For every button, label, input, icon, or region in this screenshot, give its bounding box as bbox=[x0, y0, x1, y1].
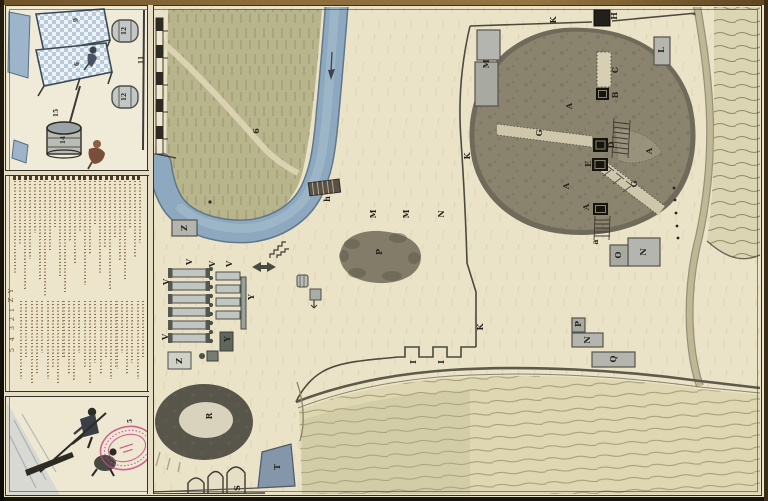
vineyard-field bbox=[707, 7, 760, 259]
legend-script-line bbox=[134, 181, 136, 257]
legend-key-mark bbox=[51, 176, 54, 180]
legend-script-line bbox=[74, 181, 76, 265]
barrel-upper bbox=[112, 20, 138, 42]
legend-script-line bbox=[64, 181, 66, 293]
legend-script-line bbox=[44, 181, 46, 296]
small-barrel bbox=[297, 275, 308, 287]
large-tub bbox=[47, 122, 81, 158]
legend-script-line bbox=[73, 301, 75, 381]
legend-script-line bbox=[109, 181, 111, 289]
lower-ladder bbox=[594, 216, 610, 240]
photo-edge-top bbox=[0, 0, 768, 5]
legend-key-mark bbox=[83, 176, 86, 180]
legend-script-line bbox=[89, 301, 91, 385]
structure-h bbox=[594, 10, 610, 26]
legend-script-line bbox=[57, 301, 59, 385]
legend-key-mark bbox=[45, 176, 48, 180]
map-panel bbox=[152, 7, 761, 494]
building-z bbox=[172, 220, 197, 236]
legend-script-line bbox=[94, 181, 96, 225]
legend-script-line bbox=[100, 301, 102, 375]
workers-inset bbox=[7, 396, 148, 495]
legend-script-line bbox=[142, 301, 144, 359]
legend-script-line bbox=[69, 181, 71, 241]
building-l bbox=[654, 37, 670, 65]
legend-script-line bbox=[19, 181, 21, 245]
legend-script-line bbox=[14, 181, 16, 273]
legend-script-line bbox=[52, 301, 54, 369]
legend-key-mark bbox=[105, 176, 108, 180]
legend-script-line bbox=[114, 181, 116, 237]
legend-script-line bbox=[115, 301, 117, 369]
manuscript-map-sheet: 6hMMNZPVVVVVYYZMKHCBAAAAGGDEaKKIILONPNQR… bbox=[0, 0, 768, 501]
map-drawing bbox=[152, 7, 761, 494]
bottom-field bbox=[299, 376, 760, 494]
bank-post bbox=[208, 200, 211, 203]
legend-script-line bbox=[110, 301, 112, 379]
legend-script-line bbox=[89, 181, 91, 255]
legend-panel bbox=[7, 175, 148, 391]
legend-key-mark bbox=[126, 176, 129, 180]
knoll-p bbox=[339, 231, 421, 283]
legend-script-line bbox=[24, 181, 26, 291]
legend-key-mark bbox=[121, 176, 124, 180]
legend-script-line bbox=[59, 181, 61, 277]
legend-script-line bbox=[39, 181, 41, 281]
legend-script-line bbox=[34, 181, 36, 233]
legend-key-mark bbox=[67, 176, 70, 180]
legend-script-line bbox=[126, 301, 128, 375]
legend-key-mark bbox=[62, 176, 65, 180]
legend-key-mark bbox=[29, 176, 32, 180]
legend-script-line bbox=[119, 181, 121, 261]
legend-script-line bbox=[139, 181, 141, 243]
buildings-m bbox=[475, 30, 500, 106]
legend-script-line bbox=[62, 301, 64, 359]
legend-script-line bbox=[20, 301, 22, 379]
legend-script-line bbox=[47, 301, 49, 379]
legend-script-line bbox=[31, 301, 33, 383]
legend-key-mark bbox=[40, 176, 43, 180]
legend-script-line bbox=[129, 181, 131, 229]
legend-key-mark bbox=[24, 176, 27, 180]
workshop-inset bbox=[7, 7, 148, 170]
legend-script-line bbox=[121, 301, 123, 353]
legend-script-line bbox=[99, 181, 101, 273]
photo-edge-right bbox=[764, 0, 768, 501]
legend-key-mark bbox=[132, 176, 135, 180]
legend-key-mark bbox=[116, 176, 119, 180]
legend-key-mark bbox=[137, 176, 140, 180]
legend-script-line bbox=[36, 301, 38, 373]
blue-panel bbox=[8, 12, 30, 78]
photo-edge-bottom bbox=[0, 497, 768, 501]
barrel-lower bbox=[112, 86, 138, 108]
legend-script-line bbox=[105, 301, 107, 359]
photo-edge-left bbox=[0, 0, 4, 501]
legend-script-line bbox=[25, 301, 27, 359]
legend-script-line bbox=[49, 181, 51, 251]
legend-key-mark bbox=[56, 176, 59, 180]
legend-key-mark bbox=[35, 176, 38, 180]
legend-script-line bbox=[131, 301, 133, 363]
legend-key-mark bbox=[13, 176, 16, 180]
legend-script-line bbox=[137, 301, 139, 379]
legend-key-mark bbox=[94, 176, 97, 180]
legend-script-line bbox=[79, 181, 81, 231]
legend-script-line bbox=[84, 301, 86, 369]
legend-key-mark bbox=[99, 176, 102, 180]
legend-key-mark bbox=[110, 176, 113, 180]
legend-script-line bbox=[41, 301, 43, 353]
legend-key-mark bbox=[78, 176, 81, 180]
legend-script-line bbox=[84, 181, 86, 285]
legend-key-mark bbox=[72, 176, 75, 180]
legend-script-line bbox=[54, 181, 56, 227]
legend-script-line bbox=[104, 181, 106, 247]
legend-script-line bbox=[68, 301, 70, 375]
legend-script-line bbox=[124, 181, 126, 279]
legend-key-mark bbox=[89, 176, 92, 180]
dotted-structure-c bbox=[597, 52, 611, 87]
legend-script-line bbox=[29, 181, 31, 259]
legend-script-line bbox=[94, 301, 96, 363]
legend-key-mark bbox=[18, 176, 21, 180]
post-row bbox=[209, 267, 213, 343]
legend-script-line bbox=[78, 301, 80, 353]
wall-edge bbox=[143, 10, 144, 150]
